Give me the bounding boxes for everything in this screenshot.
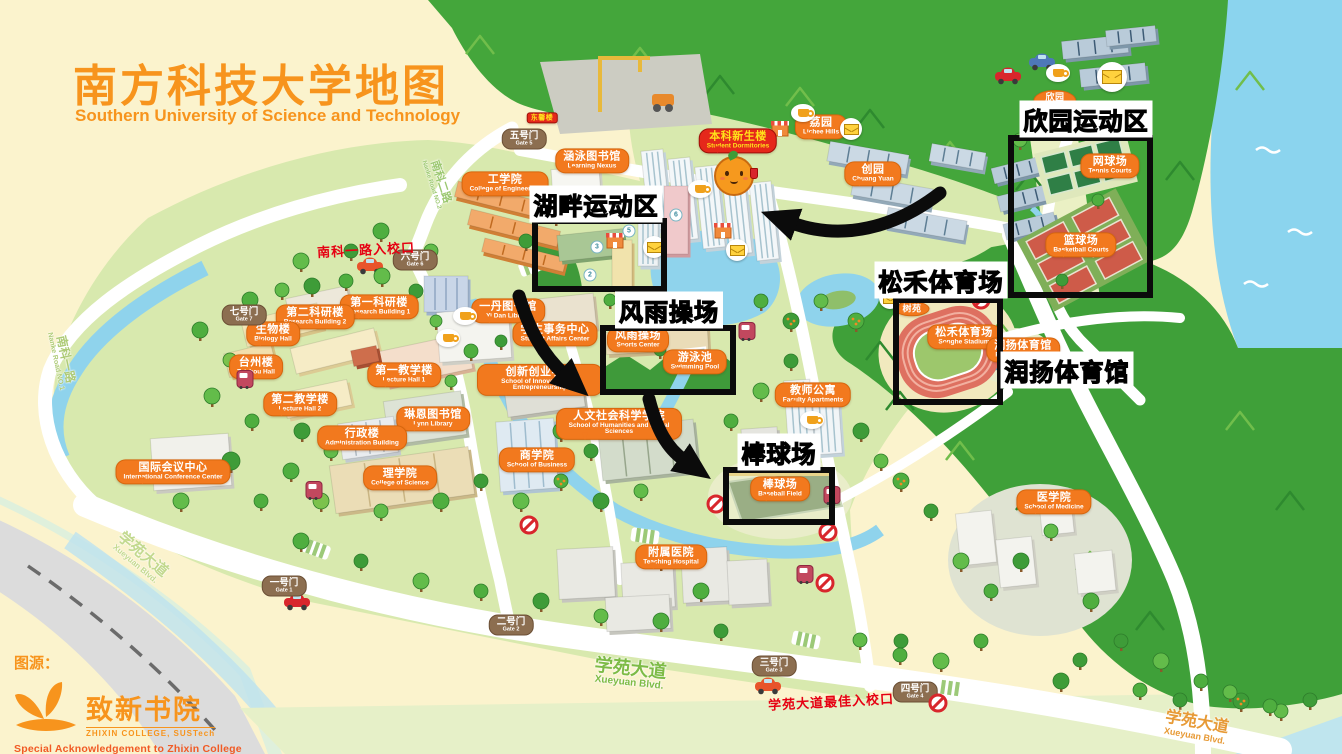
building-label-international-conference-center: 国际会议中心International Conference Center [116,459,231,484]
building-name-cn: 国际会议中心 [124,462,223,474]
building-name-cn: 一丹图书馆 [479,301,537,313]
zhixin-college-logo-icon [14,681,80,738]
gate-label-gate-7: 七号门Gate 7 [222,305,267,326]
building-name-en: Lecture Hall 2 [271,406,329,413]
building-name-en: Student Dormitories [707,143,769,150]
gate-label-gate-2: 二号门Gate 2 [489,615,534,636]
building-name-cn: 第二科研楼 [284,307,347,319]
area-label-fengyu: 风雨操场 [615,292,723,329]
gate-name-en: Gate 6 [401,262,430,268]
building-name-en: School of Humanities and Social Sciences [564,422,674,436]
building-label-chuang-yuan: 创园Chuang Yuan [844,161,901,186]
building-name-en: Lynn Library [404,421,462,428]
building-label-cn: 东馨楼 [527,112,558,123]
no-entry-icon [520,516,539,535]
gate-name-en: Gate 5 [510,141,539,147]
highlight-box-xinyuan [1008,135,1153,298]
no-entry-icon [816,574,835,593]
building-label-lynn-library: 琳恩图书馆Lynn Library [396,406,470,431]
area-label-songhe: 松禾体育场 [875,262,1008,299]
bus-stop-icon [739,322,756,340]
coffee-cup-icon [436,329,460,347]
coffee-cup-icon [791,104,815,122]
building-name-cn: 第二教学楼 [271,394,329,406]
sustech-mascot [714,156,754,196]
building-name-cn: 东馨楼 [531,114,554,121]
highlight-box-fengyu [600,325,736,395]
building-name-cn: 教师公寓 [783,385,843,397]
gate-label-gate-1: 一号门Gate 1 [262,576,307,597]
gate-name-en: Gate 7 [230,317,259,323]
campus-map: 湖畔运动区欣园运动区风雨操场松禾体育场润扬体育馆棒球场工学院College of… [0,0,1342,754]
coffee-cup-icon [1046,64,1070,82]
building-name-en: Faculty Apartments [783,397,843,404]
bus-stop-icon [797,565,814,583]
map-title: 南方科技大学地图 [73,50,449,114]
building-label-faculty-apartments: 教师公寓Faculty Apartments [775,382,851,407]
mail-icon [1097,62,1127,92]
gate-name-en: Gate 2 [497,627,526,633]
building-name-en: Research Building 1 [348,309,411,316]
coffee-cup-icon [688,180,712,198]
area-label-runyang: 润扬体育馆 [1001,352,1134,389]
gate-label-gate-3: 三号门Gate 3 [752,656,797,677]
building-name-en: Teaching Hospital [643,559,699,566]
college-name-cn: 致新书院 [86,697,215,724]
entrance-note-2: 学苑大道最佳入校口 [768,688,895,714]
building-name-cn: 理学院 [371,468,429,480]
gate-name-en: Gate 1 [270,588,299,594]
building-name-cn: 第一教学楼 [375,365,433,377]
highlight-box-baseball [723,467,835,525]
building-name-cn: 本科新生楼 [707,131,769,143]
bus-stop-icon [237,370,254,388]
road-label-xueyuan-blvd-3: 学苑大道Xueyuan Blvd. [593,656,668,693]
building-label-lecture-hall-2: 第二教学楼Lecture Hall 2 [263,391,337,416]
building-label-student-dormitories: 本科新生楼Student Dormitories [699,128,777,153]
building-name-en: Yi Dan Library [479,313,537,320]
building-name-en: Lecture Hall 1 [375,377,433,384]
building-label-teaching-hospital: 附属医院Teaching Hospital [635,544,707,569]
building-label-yi-dan-library: 一丹图书馆Yi Dan Library [471,298,545,323]
building-name-en: Learning Nexus [563,163,621,170]
building-name-en: Biology Hall [254,336,292,343]
area-label-hupan: 湖畔运动区 [530,186,663,223]
no-entry-icon [929,694,948,713]
building-label-school-of-innovation-and-entrepreneurship: 创新创业学院School of Innovation and Entrepren… [477,364,603,396]
building-name-en: School of Innovation and Entrepreneurshi… [485,378,595,392]
building-name-cn: 商学院 [507,450,567,462]
building-name-en: School of Medicine [1024,504,1083,511]
building-name-cn: 学生事务中心 [521,324,590,336]
building-name-en: Lichee Hills [803,129,839,136]
building-label-student-affairs-center: 学生事务中心Student Affairs Center [513,321,598,346]
building-label-college-of-science: 理学院College of Science [363,465,437,490]
highlight-box-hupan [532,218,667,292]
mail-icon [840,118,862,140]
attribution: 图源： 致新书院 ZHIXIN COLLEGE, SUSTech Special… [14,652,242,754]
building-name-cn: 人文社会科学学院 [564,411,674,423]
acknowledgement-text: Special Acknowledgement to Zhixin Colleg… [14,743,242,754]
coffee-cup-icon [453,307,477,325]
highlight-box-songhe [893,297,1003,405]
dorm-number-badge: 6 [670,209,683,222]
building-name-en: Chuang Yuan [852,176,893,183]
area-label-xinyuan: 欣园运动区 [1020,101,1153,138]
building-name-en: Student Affairs Center [521,336,590,343]
building-name-cn: 附属医院 [643,547,699,559]
gate-label-gate-5: 五号门Gate 5 [502,129,547,150]
map-subtitle: Southern University of Science and Techn… [75,106,460,126]
building-name-cn: 创新创业学院 [485,367,595,379]
road-label-nanke-road-no-2-0: 南科二路Nanke Road NO.2 [421,156,454,209]
source-label: 图源： [14,652,242,673]
road-label-xueyuan-blvd-2: 学苑大道Xueyuan Blvd. [109,529,170,586]
building-name-en: College of Science [371,480,429,487]
building-name-cn: 医学院 [1024,492,1083,504]
building-name-cn: 涵泳图书馆 [563,151,621,163]
building-name-cn: 琳恩图书馆 [404,409,462,421]
building-name-cn: 生物楼 [254,324,292,336]
building-label-learning-nexus: 涵泳图书馆Learning Nexus [555,148,629,173]
building-name-en: School of Business [507,462,567,469]
building-name-en: International Conference Center [124,474,223,481]
building-name-en: Administration Building [325,440,399,447]
building-name-cn: 行政楼 [325,428,399,440]
mail-icon [726,239,748,261]
gate-name-en: Gate 3 [760,668,789,674]
gate-name-en: Gate 4 [901,694,930,700]
bus-stop-icon [306,481,323,499]
coffee-cup-icon [800,411,824,429]
building-label-administration-building: 行政楼Administration Building [317,425,407,450]
building-name-cn: 台州楼 [237,357,275,369]
road-label-xueyuan-blvd-4: 学苑大道Xueyuan Blvd. [1162,710,1230,747]
area-label-baseball: 棒球场 [738,434,821,471]
road-label-nanke-road-no-1-1: 南科一路Nanke Road NO.1 [46,329,78,391]
building-label-lecture-hall-1: 第一教学楼Lecture Hall 1 [367,362,441,387]
building-label-school-of-humanities-and-social-sciences: 人文社会科学学院School of Humanities and Social … [556,408,682,440]
building-name-cn: 工学院 [470,174,541,186]
no-entry-icon [819,523,838,542]
building-name-cn: 第一科研楼 [348,297,411,309]
college-name-en: ZHIXIN COLLEGE, SUSTech [86,727,215,738]
building-name-cn: 创园 [852,164,893,176]
building-label-school-of-medicine: 医学院School of Medicine [1016,489,1091,514]
building-label-school-of-business: 商学院School of Business [499,447,575,472]
